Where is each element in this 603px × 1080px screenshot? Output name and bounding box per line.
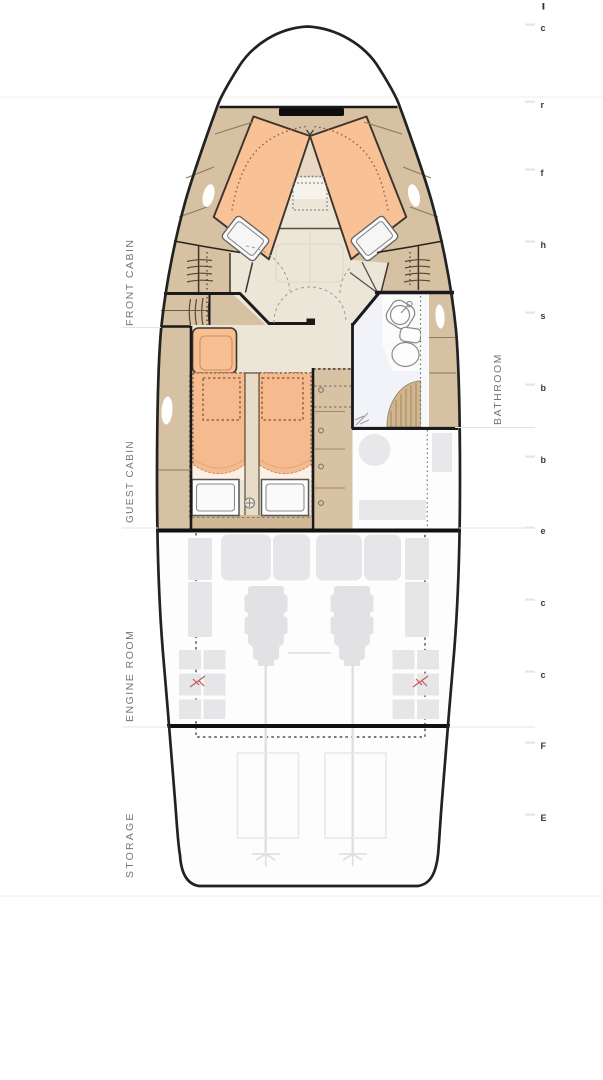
svg-text:ENGINE ROOM: ENGINE ROOM [124, 630, 136, 722]
svg-text:GUEST CABIN: GUEST CABIN [125, 440, 136, 523]
svg-text:c: c [541, 598, 546, 608]
svg-text:FRONT CABIN: FRONT CABIN [124, 239, 136, 326]
svg-text:b: b [541, 383, 547, 393]
svg-text:s: s [541, 311, 546, 321]
svg-text:b: b [541, 455, 547, 465]
svg-text:h: h [541, 240, 547, 250]
svg-text:r: r [541, 100, 545, 110]
svg-text:E: E [541, 813, 547, 823]
svg-text:BATHROOM: BATHROOM [492, 353, 504, 425]
svg-text:c: c [541, 670, 546, 680]
svg-text:e: e [541, 526, 546, 536]
svg-text:c: c [541, 23, 546, 33]
svg-text:STORAGE: STORAGE [124, 811, 136, 878]
svg-text:F: F [541, 741, 547, 751]
